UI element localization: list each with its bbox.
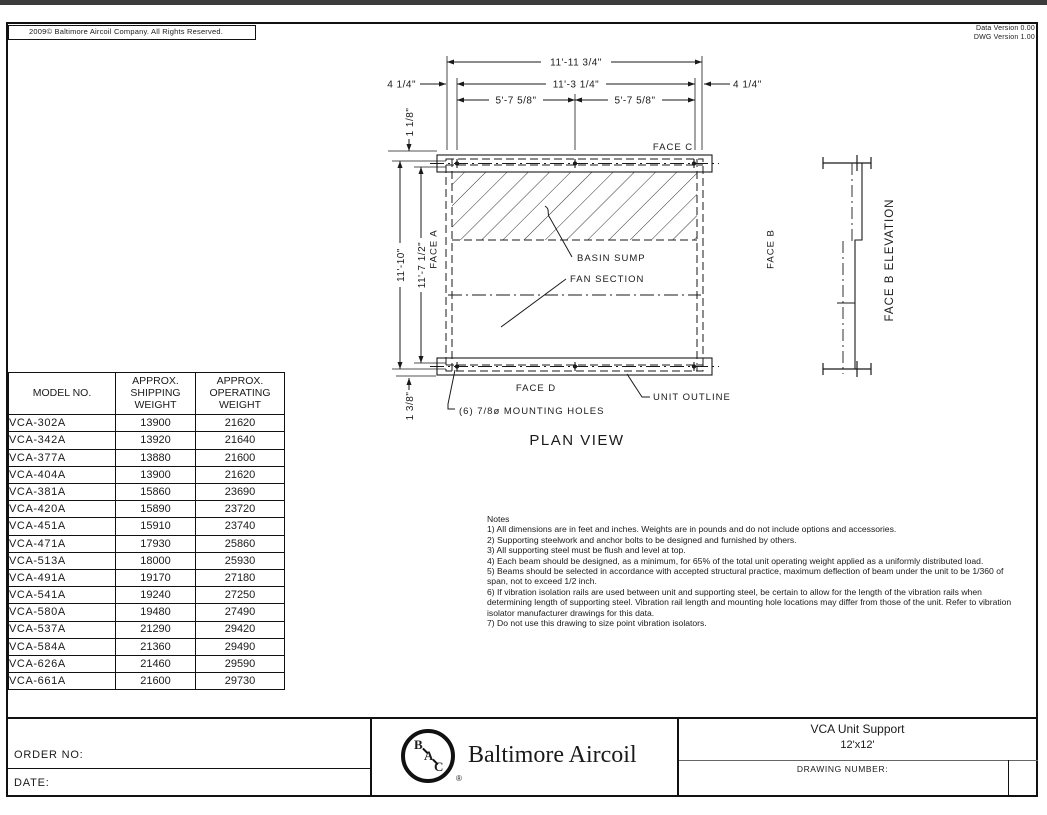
drawing-title: VCA Unit Support [679,722,1036,736]
basin-hatch-area [452,172,697,240]
dim-edge-left: 4 1/4" [387,80,416,91]
horizontal-dimension-texts: 11'-11 3/4" 11'-3 1/4" 5'-7 5/8" 5'-7 5/… [387,56,762,107]
drawing-size: 12'x12' [679,739,1036,751]
table-row: VCA-537A2129029420 [9,621,285,638]
weights-table-header-row: MODEL NO. APPROX. SHIPPING WEIGHT APPROX… [9,373,285,415]
order-date-divider [6,768,372,769]
table-row: VCA-626A2146029590 [9,655,285,672]
face-d-label: FACE D [516,383,556,394]
dim-hole-span-width: 11'-3 1/4" [553,80,599,91]
callout-texts: BASIN SUMP FAN SECTION UNIT OUTLINE (6) … [459,253,731,417]
face-a-label: FACE A [429,229,440,268]
table-row: VCA-471A1793025860 [9,535,285,552]
note-item: 6) If vibration isolation rails are used… [487,587,1017,618]
basin-sump-label: BASIN SUMP [577,253,646,264]
registered-mark: ® [456,774,462,783]
col-operating-weight: APPROX. OPERATING WEIGHT [196,373,285,415]
dim-bottom-inset: 1 3/8" [405,392,416,421]
elevation-title: FACE B ELEVATION [884,199,896,322]
order-no-label: ORDER NO: [14,749,84,761]
table-row: VCA-513A1800025930 [9,552,285,569]
dim-half-right: 5'-7 5/8" [614,96,655,107]
weights-table: MODEL NO. APPROX. SHIPPING WEIGHT APPROX… [8,372,285,690]
elevation-drawing [823,155,871,377]
notes-section: Notes 1) All dimensions are in feet and … [487,514,1017,628]
dim-hole-span-height: 11'-7 1/2" [417,242,428,288]
table-row: VCA-377A1388021600 [9,449,285,466]
table-row: VCA-381A1586023690 [9,484,285,501]
table-row: VCA-302A1390021620 [9,415,285,432]
drawing-number-cell-divider [1008,760,1009,797]
table-row: VCA-420A1589023720 [9,501,285,518]
dim-overall-width: 11'-11 3/4" [550,58,602,69]
note-item: 4) Each beam should be designed, as a mi… [487,556,1017,566]
vertical-dimension-texts: 11'-10" 11'-7 1/2" 1 1/8" 1 3/8" [394,108,429,421]
table-row: VCA-404A1390021620 [9,466,285,483]
note-item: 2) Supporting steelwork and anchor bolts… [487,535,1017,545]
bac-logo: B A C [401,729,455,783]
face-c-label: FACE C [653,142,693,153]
dim-half-left: 5'-7 5/8" [495,96,536,107]
fan-section-label: FAN SECTION [570,274,644,285]
note-item: 3) All supporting steel must be flush an… [487,545,1017,555]
mounting-holes-label: (6) 7/8ø MOUNTING HOLES [459,406,604,417]
company-name: Baltimore Aircoil [468,742,637,769]
table-row: VCA-661A2160029730 [9,673,285,690]
notes-title: Notes [487,514,1017,524]
table-row: VCA-580A1948027490 [9,604,285,621]
titleblock-divider-left [370,718,372,797]
note-item: 5) Beams should be selected in accordanc… [487,566,1017,587]
face-b-label: FACE B [766,229,777,269]
table-row: VCA-541A1924027250 [9,587,285,604]
note-item: 7) Do not use this drawing to size point… [487,618,1017,628]
table-row: VCA-451A1591023740 [9,518,285,535]
titleblock-top-border [6,717,1038,719]
drawing-number-divider [679,760,1038,761]
dim-top-inset: 1 1/8" [405,108,416,137]
drawing-sheet: 2009© Baltimore Aircoil Company. All Rig… [0,0,1047,815]
table-row: VCA-584A2136029490 [9,638,285,655]
drawing-number-label: DRAWING NUMBER: [677,764,1008,774]
dim-edge-right: 4 1/4" [733,80,762,91]
table-row: VCA-491A1917027180 [9,569,285,586]
dim-overall-height: 11'-10" [396,248,407,282]
note-item: 1) All dimensions are in feet and inches… [487,524,1017,534]
col-model: MODEL NO. [9,373,116,415]
unit-outline-label: UNIT OUTLINE [653,392,731,403]
col-shipping-weight: APPROX. SHIPPING WEIGHT [116,373,196,415]
logo-letter-b: B [414,738,423,751]
date-label: DATE: [14,777,50,789]
table-row: VCA-342A1392021640 [9,432,285,449]
plan-view-title: PLAN VIEW [529,432,624,449]
